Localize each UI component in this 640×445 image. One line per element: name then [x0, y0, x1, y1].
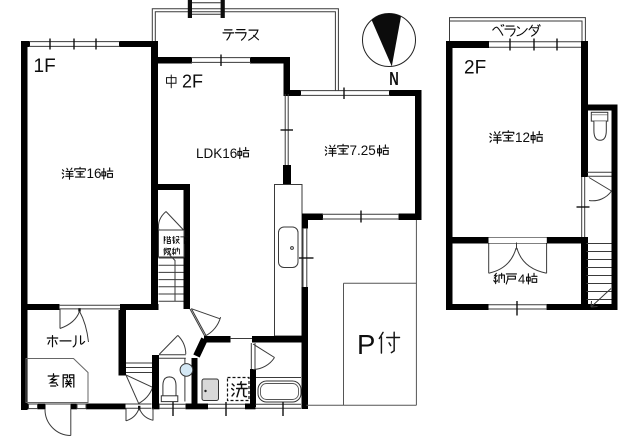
svg-text:16: 16 — [87, 166, 102, 181]
svg-text:1F: 1F — [34, 56, 56, 77]
svg-text:LDK16: LDK16 — [196, 146, 237, 161]
svg-text:2F: 2F — [182, 72, 203, 92]
svg-text:2F: 2F — [464, 58, 486, 79]
svg-text:P: P — [357, 329, 375, 360]
svg-text:N: N — [389, 69, 399, 89]
svg-text:12: 12 — [515, 130, 530, 145]
svg-text:7.25: 7.25 — [350, 143, 376, 158]
svg-text:4: 4 — [518, 272, 525, 287]
